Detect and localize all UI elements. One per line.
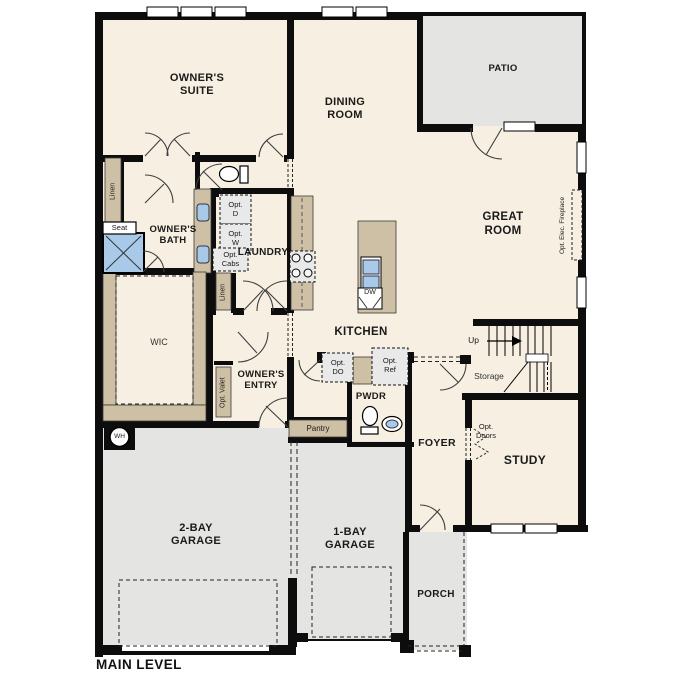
room-label-storage: Storage xyxy=(463,370,515,383)
room-label-garage-1bay: 1-BAY GARAGE xyxy=(314,521,386,557)
room-label-foyer: FOYER xyxy=(408,436,466,450)
opt-washer-label: Opt. W xyxy=(226,226,245,251)
room-label-owners-entry: OWNER'S ENTRY xyxy=(227,364,295,396)
room-label-study: STUDY xyxy=(493,452,557,468)
floor-plan: OWNER'S SUITE DINING ROOM PATIO GREAT RO… xyxy=(0,0,687,687)
room-label-wic: WIC xyxy=(139,336,179,349)
patio-door-sidelite xyxy=(504,122,535,131)
up-label: Up xyxy=(465,335,482,346)
pantry-label: Pantry xyxy=(289,422,347,435)
fireplace-outline xyxy=(572,190,582,260)
room-label-dining: DINING ROOM xyxy=(314,90,376,128)
linen-label: Linen xyxy=(105,168,121,214)
opt-valet-label: Opt. Valet xyxy=(215,369,231,416)
room-label-kitchen: KITCHEN xyxy=(324,325,398,341)
vanity-sink xyxy=(197,204,209,221)
toilet xyxy=(220,167,239,182)
opt-doors-label: Opt. Doors xyxy=(468,421,504,443)
linen-label: Linen xyxy=(215,275,231,309)
room-label-porch: PORCH xyxy=(408,588,464,601)
seat-label: Seat xyxy=(103,223,136,233)
dw-label: DW xyxy=(358,288,382,298)
wh-label: WH xyxy=(110,428,129,446)
room-label-patio: PATIO xyxy=(468,62,538,76)
opt-dryer-label: Opt. D xyxy=(226,197,245,222)
room-label-owners-bath: OWNER'S BATH xyxy=(142,220,204,250)
toilet xyxy=(363,407,378,426)
wic-shelving xyxy=(103,272,116,405)
opt-fireplace-label: Opt. Elec. Fireplace xyxy=(556,184,569,266)
room-label-pwdr: PWDR xyxy=(348,390,394,403)
room-label-great-room: GREAT ROOM xyxy=(474,206,532,244)
opt-ref-label: Opt. Ref xyxy=(378,352,402,380)
room-label-owners-suite: OWNER'S SUITE xyxy=(162,66,232,104)
wic-shelving xyxy=(103,405,206,421)
room-label-garage-2bay: 2-BAY GARAGE xyxy=(160,517,232,553)
oven-cabinet xyxy=(353,357,373,384)
plan-title: MAIN LEVEL xyxy=(96,657,236,672)
wic-shelving xyxy=(193,272,206,405)
opt-double-oven-label: Opt. DO xyxy=(326,356,350,380)
opt-cabs-label: Opt. Cabs xyxy=(218,250,243,270)
